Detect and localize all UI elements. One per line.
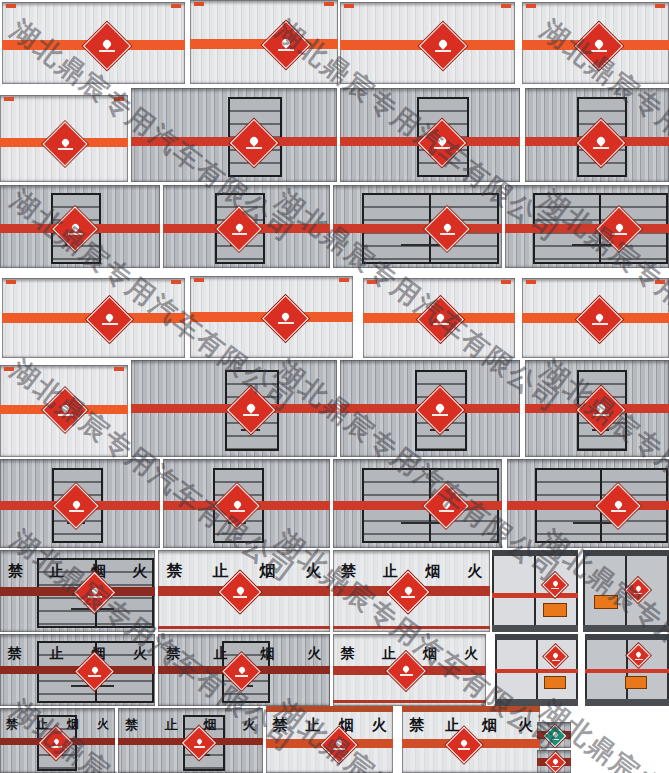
hazard-diamond-placard [86,296,133,343]
flame-icon [442,222,452,232]
flame-icon [551,580,558,587]
marker-light [324,2,334,6]
un-number-plate [594,595,618,609]
no-fire-character: 烟 [204,718,217,731]
no-fire-character: 烟 [482,717,497,732]
flame-icon [246,402,257,413]
no-fire-character: 止 [36,718,48,730]
van-side-white-photo [190,276,353,358]
flame-icon [248,135,259,146]
flame-icon [441,499,451,509]
flame-icon [45,732,67,754]
un-number-plate [625,676,647,689]
placard-text-line [434,147,450,149]
van-side-door-photo [131,88,337,182]
truck-rear-doors-photo [495,634,578,706]
hazard-diamond-placard [544,752,565,773]
van-side-door-photo [163,185,330,268]
no-fire-character: 止 [49,563,64,578]
placard-text-line [458,748,470,750]
flame-icon [82,659,107,684]
van-side-white-photo [2,278,185,358]
lower-red-trim [158,626,330,629]
lower-red-trim [333,700,486,703]
flame-icon [226,578,254,606]
marker-light [171,280,181,284]
placard-text-line [551,588,559,589]
photo-collage: 禁止烟火禁止烟火禁止烟火禁止烟火禁止烟火禁止烟火禁止烟火禁止烟火禁止烟火禁止烟火… [0,0,669,773]
van-double-door-photo [507,459,669,548]
placard-text-line [611,510,626,512]
flame-icon [335,738,343,746]
placard-text-line [593,147,609,149]
marker-light [526,4,536,8]
flame-icon [431,491,461,521]
flame-icon [425,304,456,335]
placard-text-line [278,322,294,324]
bumper-bar [585,699,669,706]
no-fire-character: 止 [164,718,177,731]
placard-text-line [99,50,115,52]
flame-icon [224,214,254,244]
hazard-stripe [333,501,502,510]
flame-icon [233,499,243,509]
flame-icon [235,585,245,595]
placard-text-line [230,510,245,512]
flame-icon [222,491,252,521]
hazard-diamond-placard [625,578,650,603]
hazard-diamond-placard [83,22,131,70]
door-divider [534,556,536,625]
van-side-door-photo [525,88,669,182]
un-number-plate [544,676,566,689]
flame-icon [551,757,558,764]
marker-light [501,280,511,284]
flame-icon [435,312,445,322]
flame-icon [459,738,467,746]
no-fire-character: 禁 [341,646,355,660]
van-side-door-photo [163,459,330,548]
van-side-white-photo [363,278,515,358]
marker-light [171,4,181,8]
marker-light [339,278,349,282]
van-side-white-photo [190,0,338,84]
hazard-diamond-placard [576,296,623,343]
van-side-white-photo [0,365,128,457]
no-fire-text: 禁止烟火 [272,717,386,732]
no-fire-character: 禁 [167,563,183,579]
flame-icon [548,729,562,743]
no-fire-character: 禁 [167,646,181,660]
flame-icon [188,732,210,754]
placard-text-line [593,414,609,416]
no-fire-character: 禁 [6,718,18,730]
van-side-door-photo [525,360,669,457]
flame-icon [234,222,244,232]
placard-text-line [233,596,247,598]
no-fire-character: 止 [383,563,398,578]
no-fire-character: 火 [372,717,387,732]
flame-icon [237,665,245,673]
van-side-door-photo [340,360,520,457]
placard-detail-photo-red [537,750,571,773]
van-side-door-photo [0,185,160,268]
placard-text-line [278,49,294,51]
bumper-bar [492,625,578,632]
placard-text-line [440,233,455,235]
flame-icon [603,491,633,521]
roof-edge [495,634,578,640]
no-fire-character: 禁 [272,717,287,732]
roof-trim [402,706,540,712]
flame-icon [437,38,448,49]
flame-icon [594,312,604,322]
placard-text-line [591,50,607,52]
truck-rear-doors-photo [583,550,669,632]
van-double-door-photo [333,185,502,268]
no-fire-character: 止 [305,717,320,732]
flame-icon [424,394,456,426]
van-side-door-photo [0,459,160,548]
flame-icon [229,659,254,684]
flame-icon [90,586,98,594]
flame-icon [70,222,80,232]
flame-icon [552,652,559,659]
no-fire-banner-photo: 禁止烟火 [158,550,330,632]
no-fire-banner-photo: 禁止烟火 [333,550,490,632]
placard-text-line [552,739,559,740]
no-fire-banner-photo: 禁止烟火 [0,550,155,632]
placard-text-line [552,660,560,661]
flame-icon [393,658,419,684]
no-fire-character: 禁 [409,717,424,732]
roof-edge [585,634,669,640]
flame-icon [102,38,113,49]
marker-light [367,280,377,284]
placard-text-line [612,233,627,235]
marker-light [655,4,665,8]
truck-rear-doors-photo [585,634,669,706]
no-fire-text: 禁止烟火 [125,718,256,731]
no-fire-character: 禁 [8,646,22,660]
flame-icon [630,582,646,598]
flame-icon [604,214,634,244]
van-side-white-photo [522,2,669,84]
marker-light [114,367,124,371]
hazard-diamond-placard [575,22,623,70]
flame-icon [281,311,291,321]
no-fire-character: 止 [214,646,228,660]
flame-icon [594,38,605,49]
placard-text-line [399,674,412,676]
flame-icon [60,137,70,147]
flame-icon [270,303,301,334]
flame-icon [394,578,422,606]
flame-icon [104,312,114,322]
flame-icon [432,214,462,244]
van-side-white-photo [2,2,185,84]
flame-icon [402,665,410,673]
no-fire-character: 止 [445,717,460,732]
marker-light [344,4,354,8]
flame-icon [403,585,413,595]
no-fire-character: 烟 [423,646,437,660]
hazard-stripe [492,593,578,598]
roof-trim [266,706,393,712]
no-fire-character: 火 [467,563,482,578]
no-fire-character: 烟 [67,718,79,730]
flame-icon [635,585,642,592]
flame-icon [53,737,60,744]
flame-icon [81,579,108,606]
flame-icon [631,648,646,663]
flame-icon [452,733,476,757]
no-fire-text: 禁止烟火 [409,717,533,732]
flame-icon [549,756,562,769]
un-number-plate [543,603,567,617]
no-fire-character: 烟 [260,646,274,660]
flame-icon [50,129,80,159]
no-fire-text: 禁止烟火 [8,563,148,578]
no-fire-text: 禁止烟火 [8,646,148,660]
no-fire-character: 烟 [425,563,440,578]
marker-light [4,97,14,101]
flame-icon [195,737,202,744]
hazard-diamond-placard [544,725,567,748]
hazard-diamond-placard [42,121,87,166]
flame-icon [71,499,81,509]
hazard-diamond-placard [418,22,466,70]
placard-text-line [232,233,247,235]
placard-text-line [88,674,101,676]
flame-icon [60,214,90,244]
no-fire-banner-photo: 禁止烟火 [402,706,540,773]
van-side-white-photo [522,278,669,358]
no-fire-banner-photo: 禁止烟火 [0,708,115,773]
hazard-diamond-placard [626,643,650,667]
placard-text-line [243,414,259,416]
marker-light [194,2,204,6]
hazard-stripe [585,669,669,673]
no-fire-character: 烟 [259,563,275,579]
flame-icon [61,491,91,521]
no-fire-character: 火 [243,718,256,731]
no-fire-character: 火 [97,718,109,730]
no-fire-banner-photo: 禁止烟火 [158,634,330,706]
van-double-door-photo [505,185,669,268]
hazard-diamond-placard [544,645,568,669]
flame-icon [60,403,70,413]
no-fire-character: 火 [132,563,147,578]
marker-light [114,97,124,101]
flame-icon [270,29,302,61]
hazard-stripe [507,501,669,510]
no-fire-banner-photo: 禁止烟火 [333,634,486,706]
placard-text-line [333,748,345,750]
no-fire-character: 止 [50,646,64,660]
placard-text-line [67,233,82,235]
no-fire-character: 止 [213,563,229,579]
roof-edge [492,550,578,556]
marker-light [6,4,16,8]
hazard-stripe [505,224,669,233]
van-side-door-photo [131,360,337,457]
no-fire-banner-photo: 禁止烟火 [266,706,393,773]
no-fire-character: 火 [133,646,147,660]
no-fire-banner-photo: 禁止烟火 [0,634,155,706]
placard-detail-photo-green [537,722,571,748]
flame-icon [427,30,459,62]
flame-icon [436,135,447,146]
marker-light [6,280,16,284]
no-fire-banner-photo: 禁止烟火 [118,708,263,773]
placard-text-line [69,510,84,512]
flame-icon [585,394,617,426]
flame-icon [595,402,606,413]
hazard-diamond-placard [262,21,310,69]
flame-icon [90,665,98,673]
flame-icon [551,731,558,738]
flame-icon [595,135,606,146]
no-fire-character: 火 [307,646,321,660]
van-side-white-photo [0,95,128,182]
placard-text-line [438,510,453,512]
flame-icon [238,127,270,159]
lower-red-trim [333,626,490,629]
flame-icon [635,650,642,657]
marker-light [501,4,511,8]
no-fire-character: 火 [464,646,478,660]
hazard-diamond-placard [262,295,309,342]
placard-text-line [58,414,73,416]
flame-icon [94,304,125,335]
flame-icon [235,394,267,426]
flame-icon [50,395,80,425]
no-fire-character: 火 [305,563,321,579]
flame-icon [585,127,617,159]
van-side-white-photo [340,2,515,84]
flame-icon [91,30,123,62]
placard-text-line [552,766,559,767]
flame-icon [327,733,351,757]
roof-edge [583,550,669,556]
no-fire-character: 禁 [8,563,23,578]
no-fire-character: 禁 [341,563,356,578]
van-side-door-photo [340,88,520,182]
van-double-door-photo [333,459,502,548]
placard-text-line [591,323,607,325]
flame-icon [583,30,615,62]
bumper-bar [583,625,669,632]
flame-icon [426,127,458,159]
marker-light [4,367,14,371]
placard-text-line [634,593,642,594]
hazard-stripe [495,669,578,673]
flame-icon [434,402,445,413]
marker-light [194,278,204,282]
placard-text-line [193,745,204,747]
flame-icon [613,499,623,509]
hazard-diamond-placard [42,388,87,433]
bumper-bar [495,699,578,706]
hazard-stripe [333,224,502,233]
placard-text-line [51,745,62,747]
marker-light [526,280,536,284]
no-fire-character: 禁 [125,718,138,731]
flame-icon [547,577,563,593]
flame-icon [280,37,291,48]
placard-text-line [87,595,101,597]
marker-light [655,280,665,284]
placard-text-line [401,596,415,598]
flame-icon [548,649,563,664]
flame-icon [584,304,615,335]
no-fire-character: 火 [518,717,533,732]
flame-icon [614,222,624,232]
placard-text-line [432,414,448,416]
hazard-diamond-placard [417,296,464,343]
truck-rear-doors-photo [492,550,578,632]
